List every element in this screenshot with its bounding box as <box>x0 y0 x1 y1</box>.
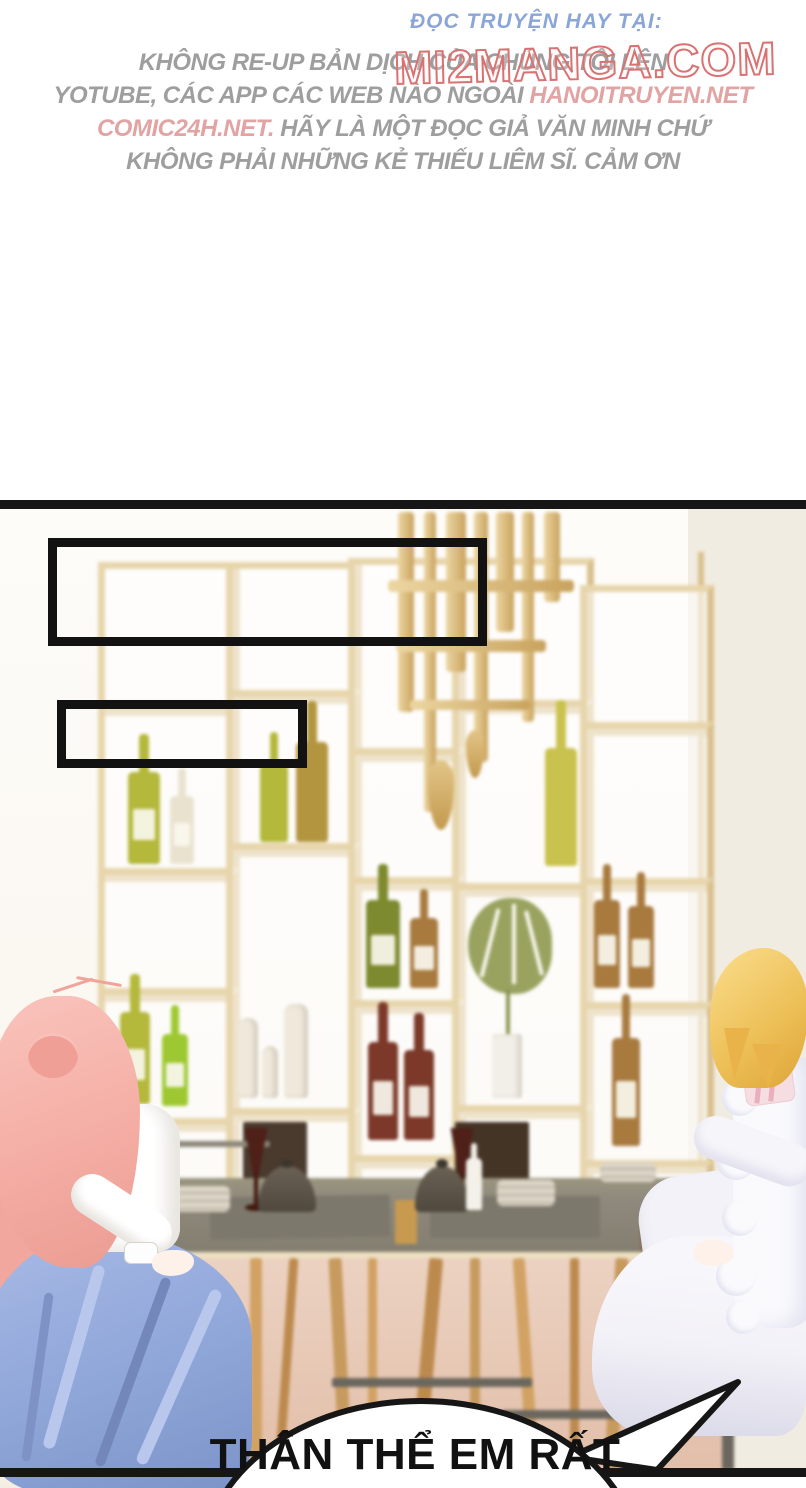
leaf-slit <box>524 910 544 975</box>
bottle-label <box>373 1081 393 1114</box>
plant-stem <box>506 990 510 1038</box>
leaf-slit <box>512 904 516 984</box>
bottle-label <box>616 1081 635 1118</box>
caption-box-1 <box>48 538 487 646</box>
manga-page: ĐỌC TRUYỆN HAY TẠI: KHÔNG RE-UP BẢN DỊCH… <box>0 0 806 1488</box>
decor-vase <box>262 1046 278 1098</box>
plate-stack <box>600 1162 656 1182</box>
chandelier-crossbar <box>410 700 530 710</box>
panel-border-top <box>0 500 806 509</box>
chandelier-rod <box>496 512 514 632</box>
bottle-label <box>409 1086 429 1117</box>
decor-vase <box>284 1004 308 1098</box>
wine-bottle-amber <box>628 906 654 988</box>
wine-bottle-amber <box>410 918 438 988</box>
table-runner-gold <box>395 1200 417 1244</box>
fur-fluff <box>722 1200 758 1236</box>
bottle-label <box>133 809 155 840</box>
man-hand <box>694 1240 734 1266</box>
bottle-label <box>371 935 394 965</box>
bottle-label <box>598 935 616 965</box>
caption-box-2 <box>57 700 307 768</box>
bottle-label <box>632 939 650 967</box>
shelf-compartment <box>580 722 714 892</box>
woman-hair-bun <box>28 1032 78 1078</box>
shelf-compartment <box>580 585 714 736</box>
speech-bubble-text: THÂN THỂ EM RẤT <box>200 1430 630 1480</box>
wine-bottle-olive <box>260 764 288 842</box>
wine-bottle-champagne <box>162 1034 188 1106</box>
glass-bowl <box>243 1128 269 1178</box>
wine-bottle-amber <box>594 900 620 988</box>
skirt-fold <box>42 1264 106 1450</box>
wine-bottle-green <box>366 900 400 988</box>
monstera-leaf <box>468 898 552 994</box>
shelf-compartment <box>580 1002 714 1174</box>
table-bottle <box>466 1158 482 1210</box>
wine-bottle-red <box>368 1042 398 1140</box>
skirt-fold <box>94 1276 172 1467</box>
fur-fluff <box>726 1300 760 1334</box>
bottle-label <box>166 1063 184 1087</box>
wine-bottle-olive <box>128 772 160 864</box>
bottle-label <box>174 823 190 846</box>
man-hair <box>710 948 806 1088</box>
wine-bottle-cream <box>170 796 194 864</box>
decor-vase <box>238 1018 258 1098</box>
wine-bottle-amber <box>612 1038 640 1146</box>
bottle-label <box>414 946 433 970</box>
wine-bottle-red <box>404 1050 434 1140</box>
plant-vase <box>492 1034 522 1098</box>
plate-stack <box>497 1180 555 1206</box>
leaf-slit <box>480 909 501 978</box>
chandelier-rod <box>522 512 534 722</box>
shelf-compartment <box>98 868 240 1002</box>
wine-bottle-tall <box>545 748 577 866</box>
chair-slat <box>332 1378 532 1387</box>
